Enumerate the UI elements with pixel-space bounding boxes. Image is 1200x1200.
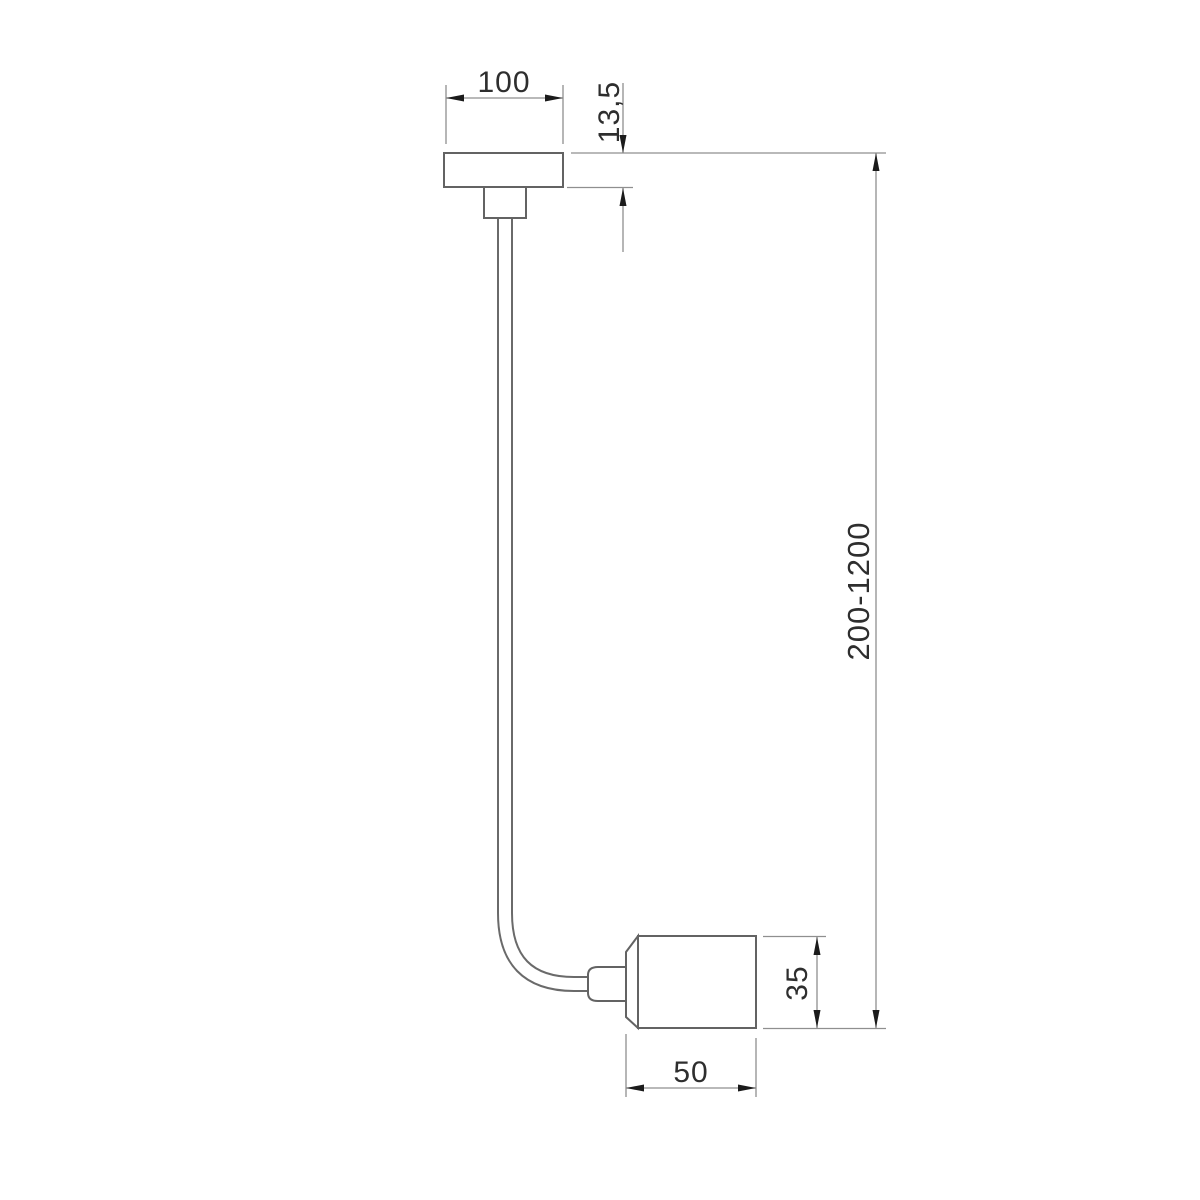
dim-socket-height-label: 35 (781, 965, 814, 1000)
socket-chamfer (626, 936, 638, 1028)
ceiling-canopy (444, 153, 563, 187)
dim-socket-width-label: 50 (673, 1056, 708, 1089)
dimension-drawing-svg: 100 13,5 200-1200 35 (0, 0, 1200, 1200)
socket-body (638, 936, 756, 1028)
dim-socket-width-arrow-left (626, 1085, 644, 1092)
dim-socket-height-arrow-up (814, 937, 821, 955)
socket-nipple (588, 967, 626, 1001)
dim-suspension-length-label: 200-1200 (841, 521, 876, 660)
dim-suspension-length: 200-1200 (841, 153, 880, 1028)
dim-canopy-thickness-label: 13,5 (593, 81, 626, 143)
dim-suspension-length-arrow-down (873, 1010, 880, 1028)
dim-canopy-width-arrow-left (446, 95, 464, 102)
technical-drawing-canvas: 100 13,5 200-1200 35 (0, 0, 1200, 1200)
dim-socket-width: 50 (626, 1034, 756, 1097)
dim-socket-width-arrow-right (738, 1085, 756, 1092)
dim-canopy-width-arrow-right (545, 95, 563, 102)
dim-canopy-thickness-arrow-up (620, 188, 627, 206)
dim-suspension-length-arrow-up (873, 153, 880, 171)
dim-canopy-width-label: 100 (477, 66, 530, 99)
canopy-cable-gland (484, 187, 526, 218)
fixture-outline (444, 153, 756, 1028)
dim-socket-height: 35 (763, 937, 886, 1029)
dim-canopy-thickness: 13,5 (567, 81, 886, 252)
dim-socket-height-arrow-down (814, 1010, 821, 1028)
suspension-cable-outline (505, 218, 590, 984)
suspension-cable-core (505, 218, 590, 984)
dim-canopy-width: 100 (446, 66, 563, 144)
